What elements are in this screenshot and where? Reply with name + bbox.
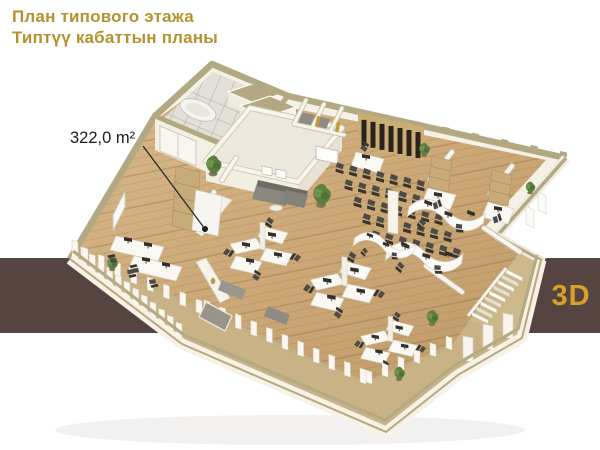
leader-dot <box>202 226 208 232</box>
area-label: 322,0 m² <box>70 129 136 147</box>
east-window <box>526 206 534 228</box>
column <box>388 190 398 234</box>
coffee-table <box>270 205 283 211</box>
page: План типового этажа Типтүү кабаттын план… <box>0 0 600 450</box>
east-window <box>538 192 546 214</box>
page-title-ru: План типового этажа <box>12 7 194 26</box>
building-shadow <box>55 415 525 445</box>
gold-plaque <box>211 278 216 284</box>
page-title-ky: Типтүү кабаттын планы <box>12 28 218 47</box>
wall-frame <box>262 166 272 176</box>
banner-3d-label: 3D <box>551 280 590 312</box>
floor-plan-illustration: План типового этажа Типтүү кабаттын план… <box>0 0 600 450</box>
wall-frame <box>276 169 286 179</box>
